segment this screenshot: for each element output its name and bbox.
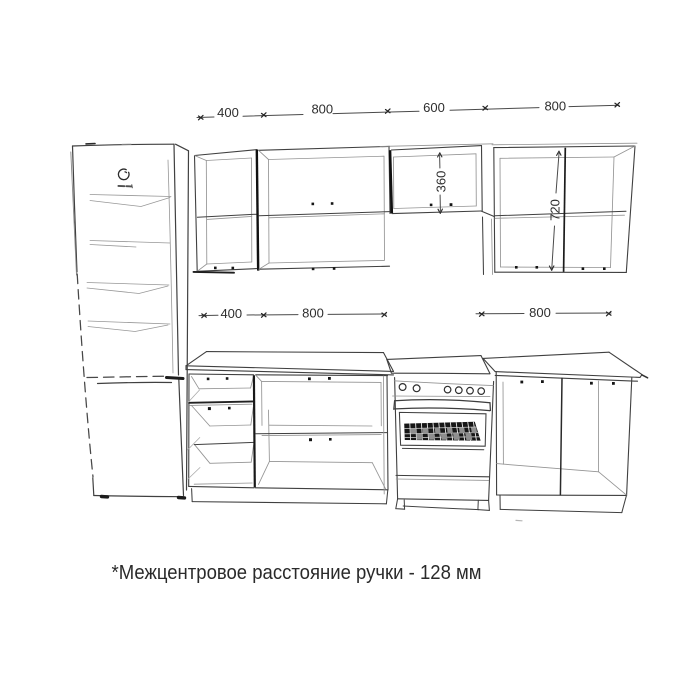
svg-text:800: 800 <box>529 305 551 320</box>
svg-text:*Межцентровое расстояние ручки: *Межцентровое расстояние ручки - 128 мм <box>112 561 482 584</box>
svg-text:800: 800 <box>311 102 333 117</box>
svg-text:720: 720 <box>548 199 563 221</box>
svg-text:800: 800 <box>544 99 566 114</box>
svg-text:400: 400 <box>217 105 239 120</box>
svg-text:360: 360 <box>434 171 449 193</box>
svg-text:400: 400 <box>220 306 242 321</box>
svg-text:600: 600 <box>423 100 445 115</box>
svg-text:800: 800 <box>302 306 324 321</box>
